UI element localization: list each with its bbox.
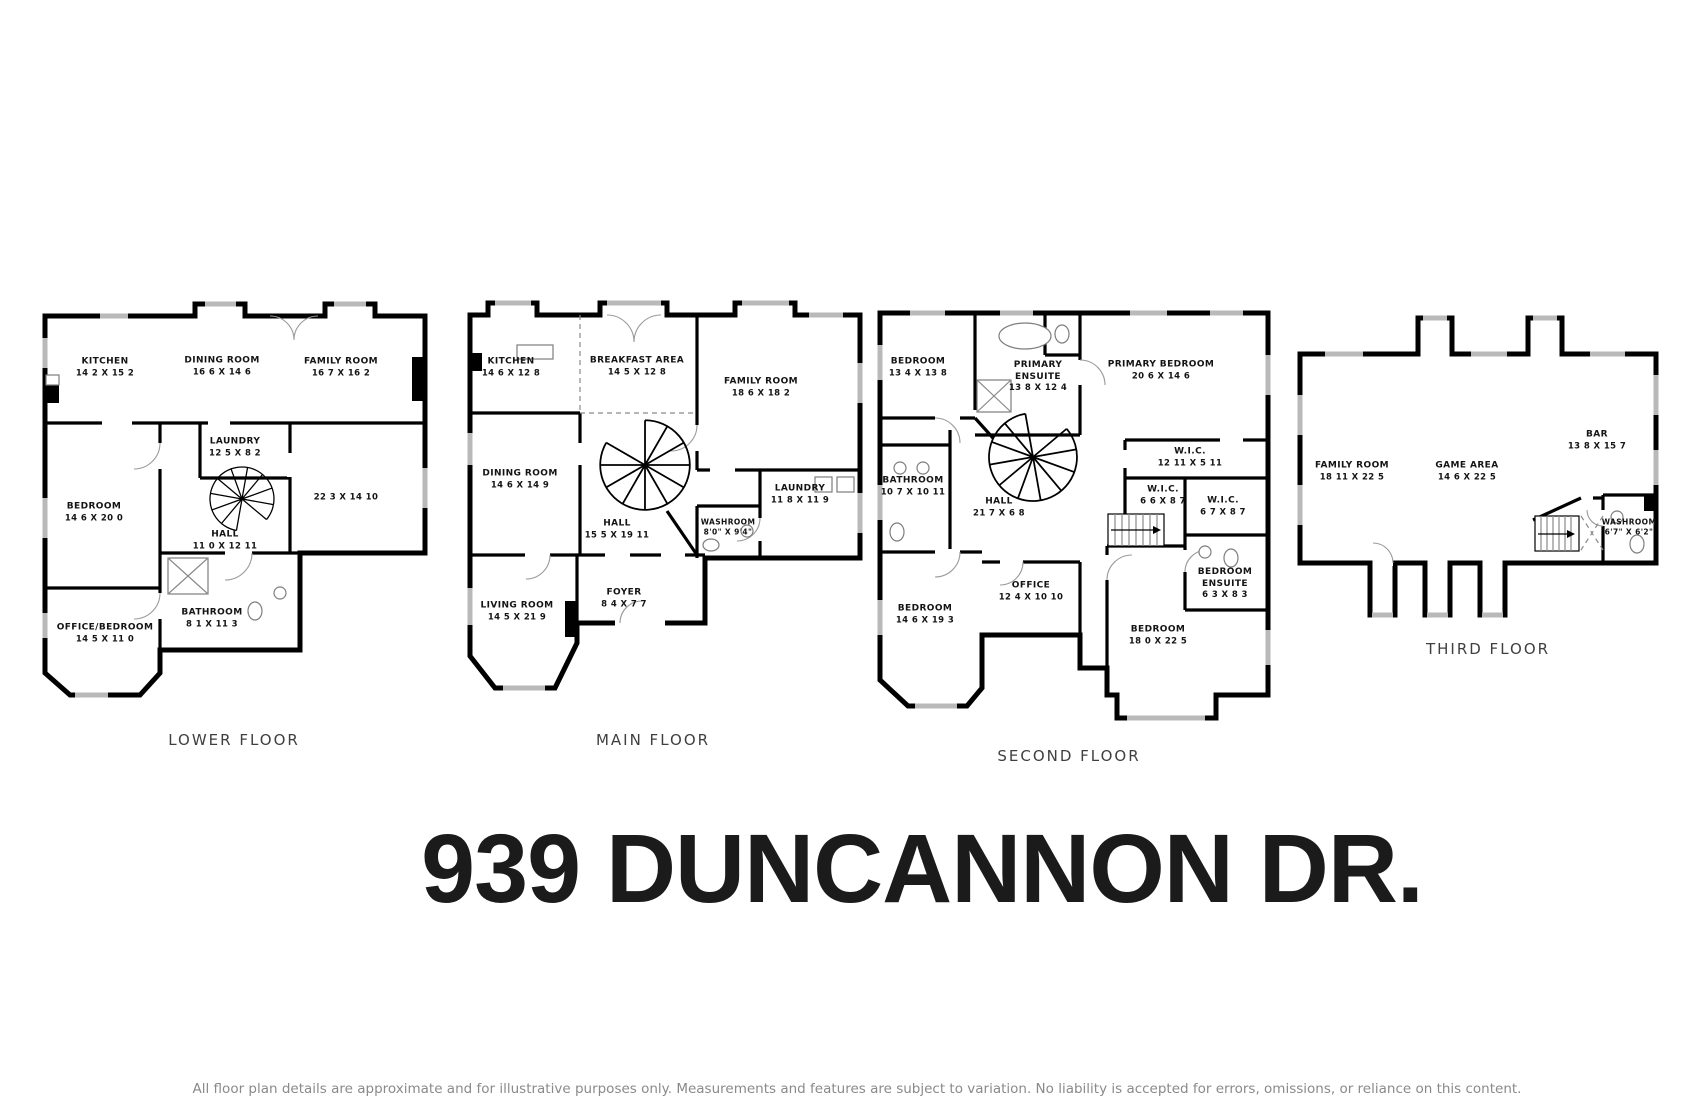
toilet-icon bbox=[1224, 549, 1238, 567]
room-label-second-primary-ensuite: PRIMARY ENSUITE13 8 X 12 4 bbox=[1005, 360, 1071, 394]
room-label-lower-hall: HALL11 0 X 12 11 bbox=[193, 530, 258, 553]
dryer-icon bbox=[837, 477, 854, 492]
room-label-main-kitchen: KITCHEN14 6 X 12 8 bbox=[482, 357, 540, 380]
room-label-third-family: FAMILY ROOM18 11 X 22 5 bbox=[1315, 461, 1389, 484]
room-label-second-office: OFFICE12 4 X 10 10 bbox=[999, 581, 1064, 604]
main-floor-plan: KITCHEN14 6 X 12 8 BREAKFAST AREA14 5 X … bbox=[465, 293, 865, 723]
room-label-second-wic3: W.I.C.6 7 X 8 7 bbox=[1200, 496, 1246, 519]
third-floor-plan: FAMILY ROOM18 11 X 22 5 GAME AREA14 6 X … bbox=[1295, 310, 1695, 630]
room-label-second-bedroom3: BEDROOM18 0 X 22 5 bbox=[1129, 625, 1187, 648]
room-label-lower-kitchen: KITCHEN14 2 X 15 2 bbox=[76, 357, 134, 380]
sink-icon bbox=[894, 462, 906, 474]
spiral-stairs-icon bbox=[587, 409, 706, 526]
property-title: 939 DUNCANNON DR. bbox=[421, 813, 1423, 925]
room-label-main-family: FAMILY ROOM18 6 X 18 2 bbox=[724, 377, 798, 400]
room-label-main-foyer: FOYER8 4 X 7 7 bbox=[601, 588, 647, 611]
room-label-third-game: GAME AREA14 6 X 22 5 bbox=[1435, 461, 1498, 484]
room-label-main-laundry: LAUNDRY11 8 X 11 9 bbox=[771, 484, 829, 507]
chimney-icon bbox=[1644, 495, 1656, 511]
room-label-second-bathroom: BATHROOM10 7 X 10 11 bbox=[881, 476, 946, 499]
room-label-main-living: LIVING ROOM14 5 X 21 9 bbox=[480, 601, 553, 624]
straight-stairs-icon bbox=[1108, 514, 1164, 546]
floor-caption-lower: LOWER FLOOR bbox=[168, 731, 300, 749]
room-label-second-wic2: W.I.C.6 6 X 8 7 bbox=[1140, 485, 1186, 508]
floor-caption-third: THIRD FLOOR bbox=[1426, 640, 1550, 658]
room-label-lower-bathroom: BATHROOM8 1 X 11 3 bbox=[181, 608, 242, 631]
sink-icon bbox=[274, 587, 286, 599]
room-label-second-primary-bedroom: PRIMARY BEDROOM20 6 X 14 6 bbox=[1108, 360, 1215, 383]
room-label-main-breakfast: BREAKFAST AREA14 5 X 12 8 bbox=[590, 356, 684, 379]
room-label-third-bar: BAR13 8 X 15 7 bbox=[1568, 430, 1626, 453]
toilet-icon bbox=[1055, 325, 1069, 343]
fixtures bbox=[46, 357, 425, 620]
room-label-second-bedroom1: BEDROOM13 4 X 13 8 bbox=[889, 357, 947, 380]
room-label-lower-rec: 22 3 X 14 10 bbox=[314, 492, 379, 503]
room-label-lower-office: OFFICE/BEDROOM14 5 X 11 0 bbox=[57, 623, 154, 646]
wall-post bbox=[565, 601, 577, 637]
floor-caption-second: SECOND FLOOR bbox=[997, 747, 1140, 765]
straight-stairs-icon bbox=[1535, 516, 1603, 551]
spiral-stairs-icon bbox=[201, 458, 282, 536]
room-label-main-washroom: WASHROOM8'0" X 9'4" bbox=[701, 517, 756, 537]
stove-icon bbox=[46, 385, 59, 403]
room-label-second-wic1: W.I.C.12 11 X 5 11 bbox=[1158, 447, 1223, 470]
floorplan-sheet: KITCHEN14 2 X 15 2 DINING ROOM16 6 X 14 … bbox=[0, 0, 1700, 1100]
room-label-lower-dining: DINING ROOM16 6 X 14 6 bbox=[184, 356, 259, 379]
sink-icon bbox=[1199, 546, 1211, 558]
bathtub-icon bbox=[999, 323, 1051, 349]
toilet-icon bbox=[1630, 535, 1644, 553]
room-label-main-dining: DINING ROOM14 6 X 14 9 bbox=[482, 469, 557, 492]
lower-floor-plan: KITCHEN14 2 X 15 2 DINING ROOM16 6 X 14 … bbox=[40, 293, 435, 723]
fireplace-icon bbox=[412, 357, 425, 401]
second-floor-plan: BEDROOM13 4 X 13 8 PRIMARY ENSUITE13 8 X… bbox=[875, 300, 1275, 730]
room-label-third-washroom: WASHROOM6'7" X 6'2" bbox=[1602, 517, 1657, 537]
room-label-main-hall: HALL15 5 X 19 11 bbox=[585, 519, 650, 542]
room-label-lower-bedroom: BEDROOM14 6 X 20 0 bbox=[65, 502, 123, 525]
floor-caption-main: MAIN FLOOR bbox=[596, 731, 710, 749]
stove-icon bbox=[470, 353, 482, 371]
disclaimer-text: All floor plan details are approximate a… bbox=[193, 1081, 1522, 1097]
sink-icon bbox=[917, 462, 929, 474]
room-label-second-bedroom-ensuite: BEDROOM ENSUITE6 3 X 8 3 bbox=[1197, 567, 1253, 601]
room-label-lower-laundry: LAUNDRY12 5 X 8 2 bbox=[209, 437, 261, 460]
toilet-icon bbox=[890, 523, 904, 541]
room-label-lower-family: FAMILY ROOM16 7 X 16 2 bbox=[304, 357, 378, 380]
room-label-second-bedroom2: BEDROOM14 6 X 19 3 bbox=[896, 604, 954, 627]
toilet-icon bbox=[248, 602, 262, 620]
toilet-icon bbox=[703, 539, 719, 551]
room-label-second-hall: HALL21 7 X 6 8 bbox=[973, 497, 1025, 520]
